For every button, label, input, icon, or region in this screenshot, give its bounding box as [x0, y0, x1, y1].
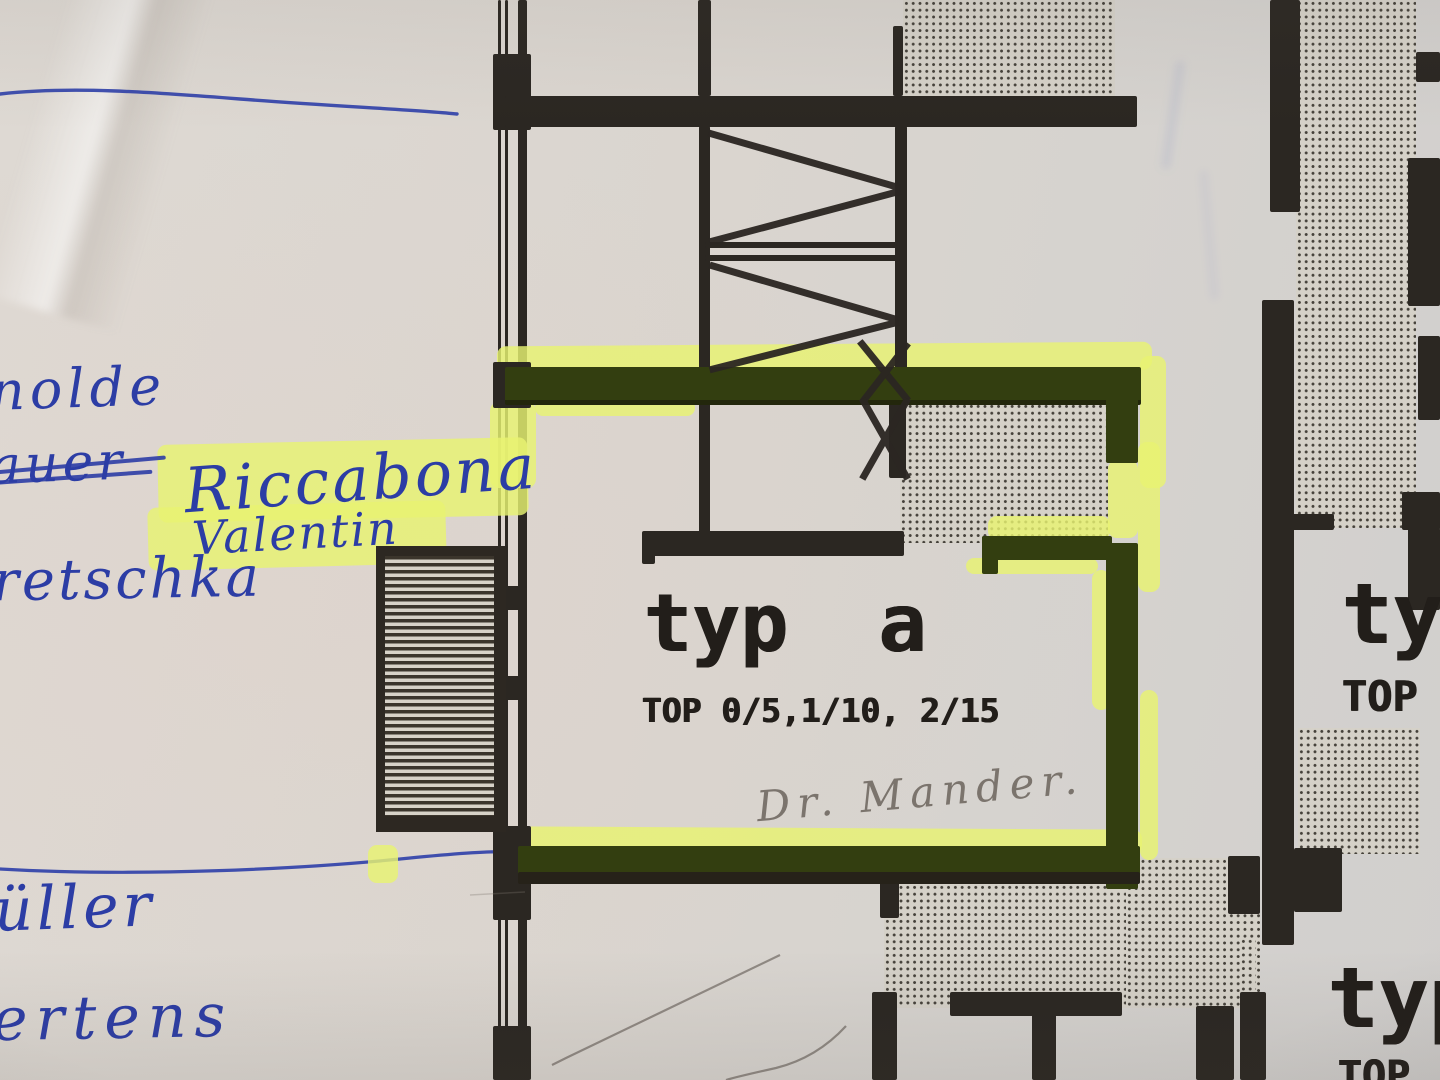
handwritten-name-mertens: ertens: [0, 986, 234, 1050]
wall-bottom-right-vertical: [1196, 1006, 1234, 1080]
wall-block: [1228, 856, 1260, 914]
wall-right-edge-block: [1402, 492, 1440, 530]
ink-bleed-mark: [1160, 60, 1185, 170]
wall-right-top-vertical: [1270, 0, 1300, 212]
handwritten-name-nolde: nolde: [0, 359, 167, 419]
highlight-s-vert-right2: [1140, 690, 1158, 860]
wall-s-horizontal-highlighted: [982, 536, 1112, 560]
handwritten-name-mueller: üller: [0, 875, 156, 941]
wall-right-edge-vertical: [1418, 336, 1440, 420]
stippled-wall-fill: [884, 884, 1126, 1008]
unit-a-type-label: typ a: [644, 584, 927, 664]
unit-a-top-label: TOP 0/5,1/10, 2/15: [642, 694, 1000, 727]
wall-right-edge-stub: [1416, 52, 1440, 82]
wall-s-cap-highlighted: [982, 536, 998, 574]
paper-crease: [0, 0, 217, 332]
wall-top-horizontal: [505, 96, 1137, 127]
stair-wall-left-upper: [698, 0, 711, 96]
stippled-wall-fill: [1296, 0, 1416, 528]
pencil-note: Dr. Mander.: [755, 758, 1086, 828]
highlight-door-gap: [1108, 460, 1138, 538]
stair-wall-left-lower: [699, 398, 710, 535]
pen-line-bottom: [0, 852, 506, 872]
wall-mid-highlighted: [505, 367, 1141, 405]
wall-stub-below-bottom: [880, 878, 899, 918]
wall-mid-right-leg-highlighted: [1106, 367, 1138, 463]
stair-wall-right-upper: [893, 26, 903, 96]
balcony-hatched: [376, 546, 506, 832]
stair-wall-right: [895, 126, 907, 372]
wall-right-main-vertical: [1262, 300, 1294, 945]
stippled-wall-fill: [1298, 728, 1420, 854]
corridor-pillar: [493, 1026, 531, 1080]
wall-bottom-right-block: [1240, 992, 1266, 1080]
highlight-s-vert-right: [1138, 442, 1160, 592]
stair-wall-left: [699, 126, 710, 372]
stair-landing-line: [705, 255, 900, 261]
handwritten-name-kretschka: retschka: [0, 550, 262, 611]
wall-s-vertical-highlighted: [1106, 543, 1138, 889]
wall-bottom-underside: [518, 872, 1140, 884]
handwritten-name-crossed-out: auer: [0, 436, 127, 493]
wall-right-edge-vertical: [1408, 158, 1440, 306]
wall-bottom-vertical: [872, 992, 897, 1080]
unit-right-top-label: TOP: [1342, 676, 1418, 718]
wall-typa-top: [644, 531, 904, 556]
wall-typa-top-cap: [642, 531, 655, 564]
unit-bottom-right-type-label: typ: [1328, 956, 1440, 1040]
stair-landing-line: [705, 242, 900, 248]
stippled-wall-fill: [903, 0, 1115, 100]
unit-right-type-label: typ: [1342, 572, 1440, 656]
wall-bottom-vertical: [1032, 1010, 1056, 1080]
floorplan-photo: typ a TOP 0/5,1/10, 2/15 typ TOP typ TOP…: [0, 0, 1440, 1080]
stair-zigzag: [712, 134, 906, 476]
wall-right-door-stub: [1290, 514, 1334, 530]
ink-bleed-mark: [1199, 170, 1218, 300]
stair-wall-right-lower: [889, 398, 906, 478]
wall-right-lower-block: [1294, 848, 1342, 912]
unit-bottom-right-top-label: TOP: [1338, 1056, 1410, 1080]
highlight-balcony-corner: [368, 845, 398, 883]
